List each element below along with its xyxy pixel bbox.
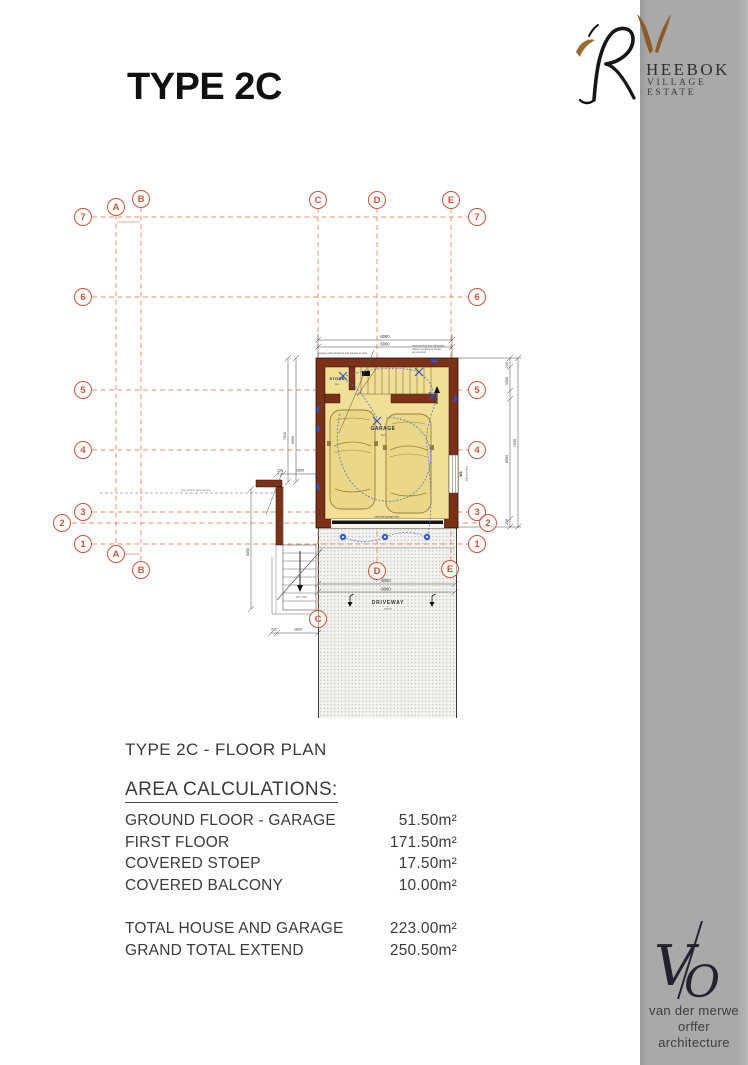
dim-stoep-length: 5850 [246, 548, 250, 556]
note-left: garage walls plastered and painted to sp… [318, 351, 368, 355]
grid-bubble-6-left: 6 [74, 288, 92, 306]
floor-plan-drawing: line of first floor above 150 x 250 [0, 0, 748, 1065]
grid-bubble-1-left: 1 [74, 535, 92, 553]
estate-name-text: HEEBOK [646, 60, 730, 79]
stair-tread-note: 150 x 250 [296, 596, 308, 599]
grid-bubble-d-top: D [368, 191, 386, 209]
grid-bubble-3-left: 3 [74, 503, 92, 521]
grid-bubble-5-left: 5 [74, 381, 92, 399]
window-w1 [449, 455, 458, 493]
architect-name-3: architecture [640, 1035, 748, 1051]
estate-subtitle: VILLAGE ESTATE [647, 78, 748, 98]
first-floor-line: line of first floor above [100, 488, 282, 493]
dim-left-overall: 7940 [283, 432, 287, 440]
grid-bubble-e-bottom: E [441, 560, 459, 578]
dim-right-wall-bottom: 230 [505, 519, 509, 525]
grid-bubble-e-top: E [442, 191, 460, 209]
rheebok-r-monogram-icon [580, 25, 634, 103]
dim-bottom-overall: 6060 [381, 587, 391, 592]
grid-bubble-a-top: A [107, 198, 125, 216]
grid-bubble-4-right: 4 [468, 441, 486, 459]
rheebok-antler-icon [637, 14, 671, 54]
dim-stoep-wall: 230 [277, 469, 283, 473]
grid-bubble-c-top: C [309, 191, 327, 209]
first-floor-line-label: line of first floor above [181, 488, 211, 492]
grid-bubble-d-bottom: D [368, 562, 386, 580]
grid-bubble-2-right: 2 [479, 514, 497, 532]
dim-right-seg: 1000 [505, 377, 509, 385]
garage-sublabel: tiles [381, 433, 386, 437]
driveway-sublabel: pavers [384, 607, 392, 611]
stoep-and-stair: 150 x 250 [256, 470, 322, 614]
grid-bubble-c-bottom: C [309, 610, 327, 628]
estate-name: HEEBOK [646, 60, 730, 80]
note-right-3: as per detail [412, 351, 426, 354]
garage-door-label: sectional garage door [375, 515, 400, 519]
dim-left-main: 6000 [291, 436, 295, 444]
dim-top-inner: 6000 [380, 342, 390, 347]
architect-logo: V O van der merwe orffer architecture [640, 915, 748, 1051]
grid-bubble-7-right: 7 [468, 208, 486, 226]
driveway-light-icon [340, 534, 430, 540]
grid-bubble-2-left: 2 [53, 514, 71, 532]
dim-right-main: 6000 [505, 455, 509, 463]
monogram-o: O [684, 957, 720, 1003]
grid-bubble-1-right: 1 [468, 535, 486, 553]
drawing-sheet: TYPE 2C HEEBOK VILLAGE ESTATE [0, 0, 748, 1065]
dim-top-overall: 6060 [380, 334, 390, 339]
architect-monogram-icon: V O [640, 915, 748, 1003]
dim-right-overall: 7940 [513, 439, 517, 447]
architect-name-2: orffer [640, 1019, 748, 1035]
garage-label: GARAGE [371, 426, 396, 432]
grid-bubble-5-right: 5 [468, 381, 486, 399]
window-size: 1.8m x 0.6m [465, 466, 469, 482]
grid-bubble-b-top: B [132, 190, 150, 208]
grid-bubble-4-left: 4 [74, 441, 92, 459]
grid-bubble-b-bottom: B [132, 561, 150, 579]
dim-stoep-width: 1600 [296, 469, 304, 473]
window-tag: W1 [459, 471, 463, 476]
grid-bubble-a-bottom: A [107, 545, 125, 563]
architect-name-1: van der merwe [640, 1003, 748, 1019]
rheebok-leaf-icon [576, 40, 595, 58]
dim-bottom-inner: 6000 [381, 578, 391, 583]
grid-bubble-7-left: 7 [74, 208, 92, 226]
driveway-markings: DRIVEWAY pavers [348, 594, 436, 611]
car-left [327, 410, 378, 509]
driveway-label: DRIVEWAY [372, 600, 405, 606]
dim-bottom-stoep: 1600 [294, 628, 302, 632]
dim-right-wall-top: 230 [505, 362, 509, 368]
dim-bottom-wall: 230 [271, 628, 277, 632]
grid-bubble-6-right: 6 [468, 288, 486, 306]
